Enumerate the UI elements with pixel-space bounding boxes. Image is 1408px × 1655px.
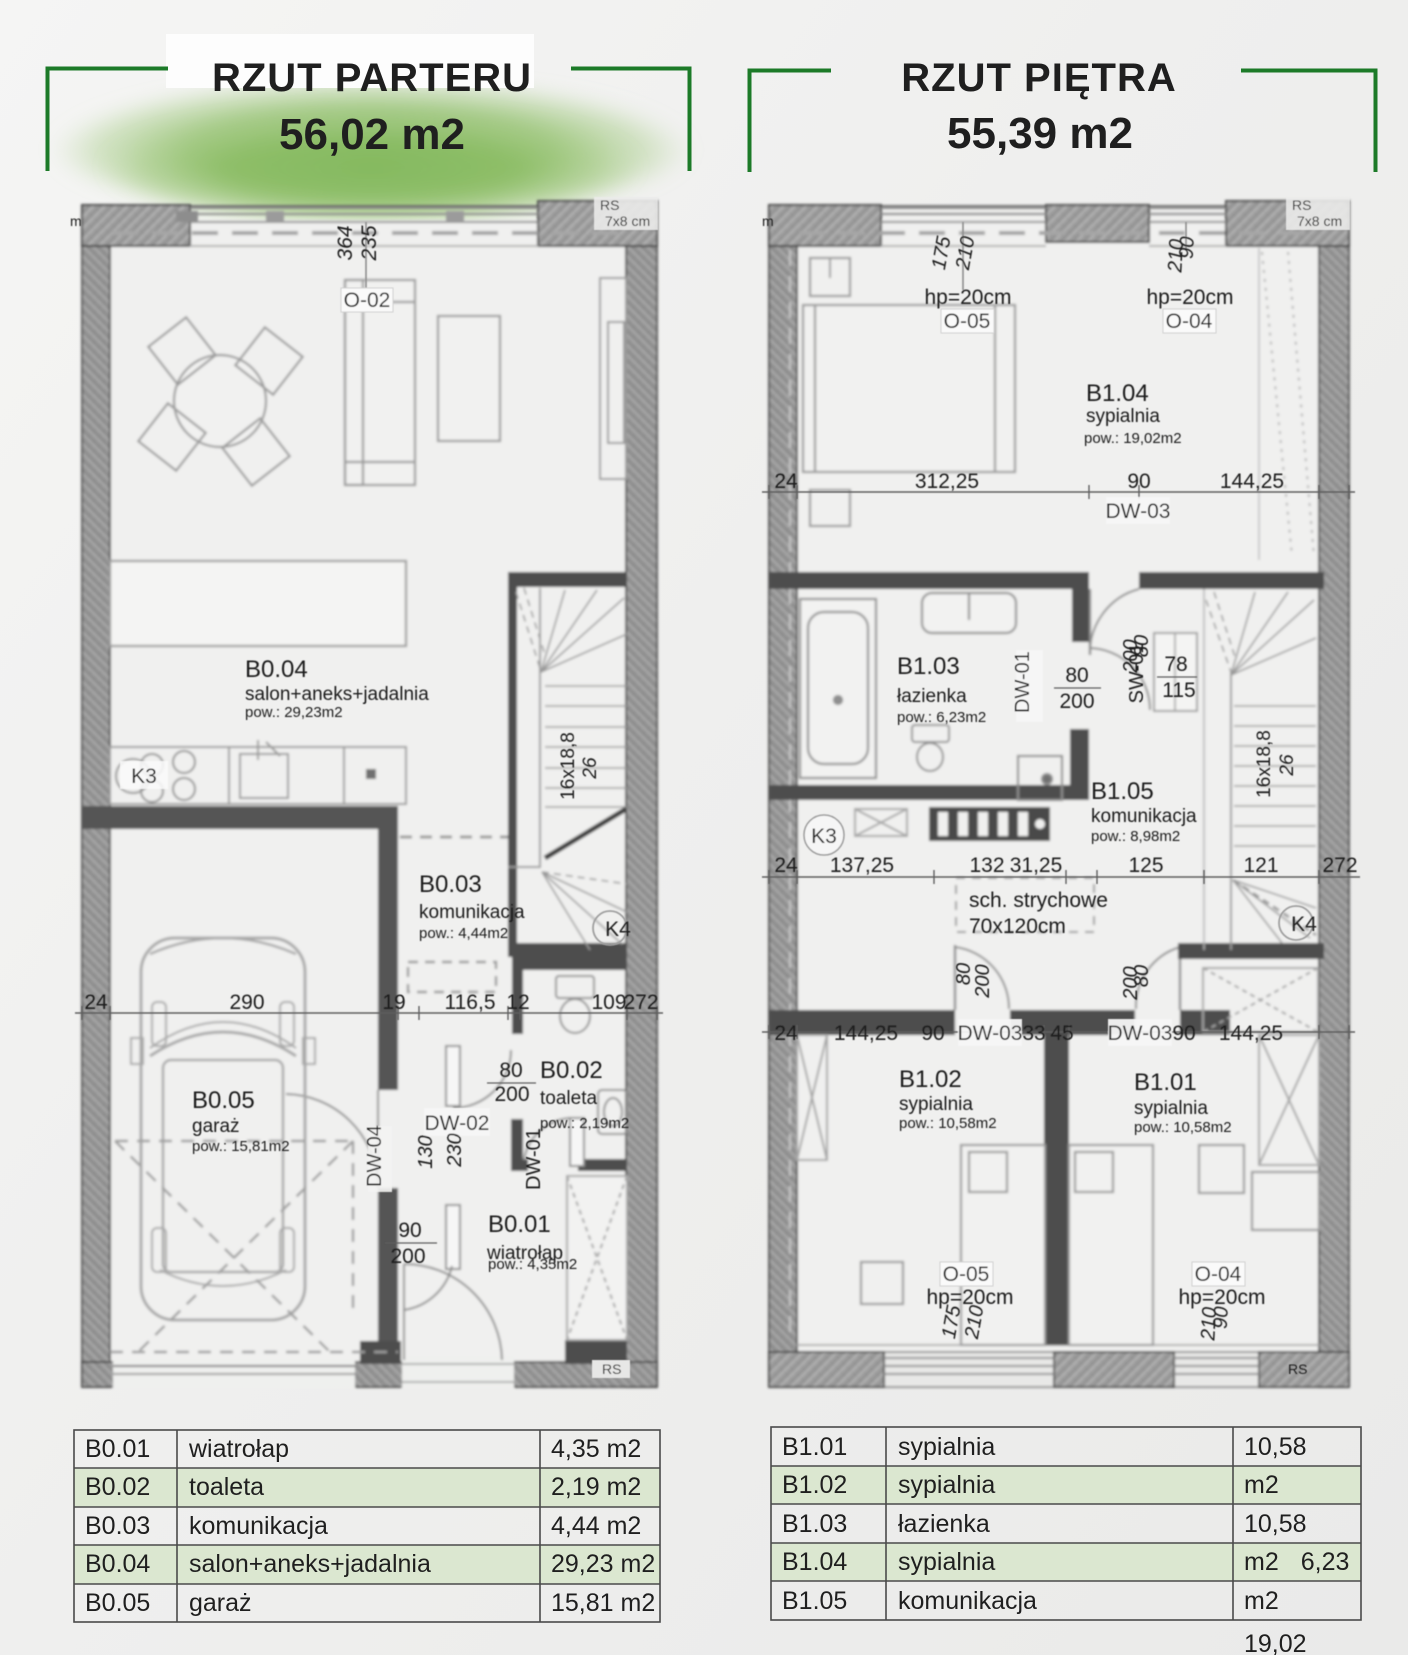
svg-text:B0.04: B0.04 xyxy=(245,656,308,683)
svg-text:33: 33 xyxy=(1022,1022,1045,1045)
svg-text:B1.01: B1.01 xyxy=(782,1433,847,1461)
svg-text:90: 90 xyxy=(1127,470,1150,493)
svg-text:200: 200 xyxy=(1059,690,1094,713)
svg-text:80: 80 xyxy=(1131,965,1153,987)
svg-text:komunikacja: komunikacja xyxy=(1091,806,1197,827)
svg-text:sch. strychowe: sch. strychowe xyxy=(969,889,1108,912)
svg-text:12: 12 xyxy=(506,991,529,1014)
svg-text:144,25: 144,25 xyxy=(1219,1022,1283,1045)
svg-text:sypialnia: sypialnia xyxy=(1086,406,1160,427)
svg-text:DW-04: DW-04 xyxy=(364,1125,386,1187)
svg-text:łazienka: łazienka xyxy=(897,686,967,707)
svg-text:272: 272 xyxy=(623,991,658,1014)
svg-text:15,81 m2: 15,81 m2 xyxy=(551,1589,655,1617)
svg-text:90: 90 xyxy=(921,1022,944,1045)
svg-text:RS: RS xyxy=(600,197,619,213)
svg-text:132: 132 xyxy=(969,854,1004,877)
svg-text:O-04: O-04 xyxy=(1166,310,1213,333)
svg-text:B0.04: B0.04 xyxy=(85,1550,150,1578)
svg-text:B0.01: B0.01 xyxy=(85,1435,150,1463)
svg-text:B1.02: B1.02 xyxy=(782,1471,847,1499)
svg-text:pow.: 29,23m2: pow.: 29,23m2 xyxy=(245,704,343,721)
svg-text:109: 109 xyxy=(591,991,626,1014)
svg-text:272: 272 xyxy=(1322,854,1357,877)
svg-text:4,35 m2: 4,35 m2 xyxy=(551,1435,641,1463)
svg-text:sypialnia: sypialnia xyxy=(1134,1098,1208,1119)
svg-text:m2: m2 xyxy=(1244,1471,1279,1499)
svg-text:pow.: 8,98m2: pow.: 8,98m2 xyxy=(1091,828,1180,845)
svg-text:pow.: 10,58m2: pow.: 10,58m2 xyxy=(899,1115,997,1132)
svg-text:7x8 cm: 7x8 cm xyxy=(605,213,650,229)
svg-text:B0.05: B0.05 xyxy=(85,1589,150,1617)
svg-text:130: 130 xyxy=(415,1135,437,1168)
svg-text:RZUT PIĘTRA: RZUT PIĘTRA xyxy=(901,56,1176,100)
svg-text:312,25: 312,25 xyxy=(915,470,979,493)
svg-text:19,02: 19,02 xyxy=(1244,1630,1307,1655)
svg-text:200: 200 xyxy=(972,964,994,998)
svg-text:26: 26 xyxy=(580,757,601,780)
svg-text:230: 230 xyxy=(444,1133,466,1167)
svg-text:80: 80 xyxy=(499,1059,522,1082)
svg-text:70x120cm: 70x120cm xyxy=(969,915,1066,938)
svg-text:pow.: 4,44m2: pow.: 4,44m2 xyxy=(419,925,508,942)
svg-text:80: 80 xyxy=(1065,664,1088,687)
svg-text:364: 364 xyxy=(334,225,357,260)
svg-text:235: 235 xyxy=(358,225,381,261)
svg-text:SW-01: SW-01 xyxy=(1126,643,1148,704)
svg-text:90: 90 xyxy=(1176,236,1199,259)
svg-text:pow.: 15,81m2: pow.: 15,81m2 xyxy=(192,1138,290,1155)
svg-text:DW-02: DW-02 xyxy=(425,1112,490,1135)
svg-text:m2: m2 xyxy=(1244,1587,1279,1615)
svg-text:200: 200 xyxy=(494,1083,529,1106)
svg-text:121: 121 xyxy=(1243,854,1278,877)
svg-text:144,25: 144,25 xyxy=(834,1022,898,1045)
svg-text:komunikacja: komunikacja xyxy=(898,1587,1037,1615)
svg-text:B1.05: B1.05 xyxy=(782,1587,847,1615)
svg-text:K4: K4 xyxy=(1291,913,1317,936)
svg-text:B1.01: B1.01 xyxy=(1134,1069,1197,1096)
svg-text:90: 90 xyxy=(1210,1306,1233,1329)
svg-text:90: 90 xyxy=(1172,1022,1195,1045)
svg-text:19: 19 xyxy=(382,991,405,1014)
svg-text:B0.01: B0.01 xyxy=(488,1211,551,1238)
svg-text:salon+aneks+jadalnia: salon+aneks+jadalnia xyxy=(189,1550,431,1578)
svg-text:sypialnia: sypialnia xyxy=(898,1433,995,1461)
svg-text:wiatrołap: wiatrołap xyxy=(188,1435,289,1463)
svg-text:sypialnia: sypialnia xyxy=(898,1471,995,1499)
svg-text:DW-03: DW-03 xyxy=(1106,500,1171,523)
svg-text:garaż: garaż xyxy=(192,1116,240,1137)
svg-text:salon+aneks+jadalnia: salon+aneks+jadalnia xyxy=(245,684,429,705)
svg-text:B0.05: B0.05 xyxy=(192,1087,255,1114)
svg-text:sypialnia: sypialnia xyxy=(898,1548,995,1576)
svg-text:B0.03: B0.03 xyxy=(419,871,482,898)
svg-text:B1.04: B1.04 xyxy=(1086,380,1149,407)
svg-text:B1.05: B1.05 xyxy=(1091,778,1154,805)
svg-text:16x18,8: 16x18,8 xyxy=(1254,730,1275,798)
svg-text:O-05: O-05 xyxy=(943,1263,990,1286)
svg-text:O-04: O-04 xyxy=(1195,1263,1242,1286)
svg-text:toaleta: toaleta xyxy=(540,1088,597,1109)
svg-text:125: 125 xyxy=(1128,854,1163,877)
svg-text:B1.04: B1.04 xyxy=(782,1548,847,1576)
svg-text:komunikacja: komunikacja xyxy=(419,902,525,923)
svg-text:4,44 m2: 4,44 m2 xyxy=(551,1512,641,1540)
svg-text:O-05: O-05 xyxy=(944,310,991,333)
svg-text:RZUT PARTERU: RZUT PARTERU xyxy=(212,56,532,100)
svg-text:RS: RS xyxy=(1288,1361,1307,1377)
svg-text:B1.03: B1.03 xyxy=(782,1510,847,1538)
svg-text:RS: RS xyxy=(602,1361,621,1377)
svg-text:55,39 m2: 55,39 m2 xyxy=(947,109,1133,158)
svg-text:10,58: 10,58 xyxy=(1244,1433,1307,1461)
svg-text:29,23 m2: 29,23 m2 xyxy=(551,1550,655,1578)
svg-text:sypialnia: sypialnia xyxy=(899,1094,973,1115)
svg-text:200: 200 xyxy=(390,1245,425,1268)
svg-text:DW-01: DW-01 xyxy=(523,1128,545,1190)
svg-text:16x18,8: 16x18,8 xyxy=(558,732,579,800)
svg-text:45: 45 xyxy=(1050,1022,1073,1045)
svg-text:7x8 cm: 7x8 cm xyxy=(1297,213,1342,229)
svg-text:137,25: 137,25 xyxy=(830,854,894,877)
svg-text:B1.03: B1.03 xyxy=(897,653,960,680)
svg-text:56,02 m2: 56,02 m2 xyxy=(279,110,465,159)
svg-text:290: 290 xyxy=(229,991,264,1014)
svg-text:K4: K4 xyxy=(605,918,631,941)
svg-text:komunikacja: komunikacja xyxy=(189,1512,328,1540)
svg-text:B0.03: B0.03 xyxy=(85,1512,150,1540)
svg-text:B0.02: B0.02 xyxy=(540,1057,603,1084)
svg-text:RS: RS xyxy=(1292,197,1311,213)
svg-text:115: 115 xyxy=(1162,679,1195,702)
svg-text:pow.: 6,23m2: pow.: 6,23m2 xyxy=(897,709,986,726)
svg-text:116,5: 116,5 xyxy=(445,991,496,1014)
svg-text:10,58: 10,58 xyxy=(1244,1510,1307,1538)
svg-text:B1.02: B1.02 xyxy=(899,1066,962,1093)
svg-text:24: 24 xyxy=(774,854,798,877)
svg-text:O-02: O-02 xyxy=(344,289,391,312)
svg-text:24: 24 xyxy=(774,1022,798,1045)
svg-text:24: 24 xyxy=(774,470,798,493)
svg-text:garaż: garaż xyxy=(189,1589,252,1617)
svg-text:DW-03: DW-03 xyxy=(958,1022,1023,1045)
svg-text:hp=20cm: hp=20cm xyxy=(925,286,1012,309)
svg-text:hp=20cm: hp=20cm xyxy=(1179,1286,1266,1309)
svg-text:łazienka: łazienka xyxy=(898,1510,990,1538)
svg-text:2,19 m2: 2,19 m2 xyxy=(551,1473,641,1501)
svg-text:m: m xyxy=(762,213,774,229)
svg-text:K3: K3 xyxy=(811,825,837,848)
svg-text:24: 24 xyxy=(84,991,108,1014)
svg-text:DW-01: DW-01 xyxy=(1012,651,1034,713)
svg-text:hp=20cm: hp=20cm xyxy=(1147,286,1234,309)
svg-text:toaleta: toaleta xyxy=(189,1473,264,1501)
svg-text:pow.: 4,35m2: pow.: 4,35m2 xyxy=(488,1256,577,1273)
svg-text:pow.: 19,02m2: pow.: 19,02m2 xyxy=(1084,430,1182,447)
svg-text:m: m xyxy=(70,213,82,229)
svg-text:B0.02: B0.02 xyxy=(85,1473,150,1501)
svg-text:90: 90 xyxy=(398,1219,421,1242)
svg-text:pow.: 2,19m2: pow.: 2,19m2 xyxy=(540,1115,629,1132)
svg-text:78: 78 xyxy=(1164,653,1187,676)
svg-text:31,25: 31,25 xyxy=(1010,854,1063,877)
svg-text:144,25: 144,25 xyxy=(1220,470,1284,493)
svg-text:DW-03: DW-03 xyxy=(1108,1022,1173,1045)
svg-text:K3: K3 xyxy=(131,765,157,788)
svg-text:pow.: 10,58m2: pow.: 10,58m2 xyxy=(1134,1119,1232,1136)
svg-text:26: 26 xyxy=(1277,754,1298,777)
